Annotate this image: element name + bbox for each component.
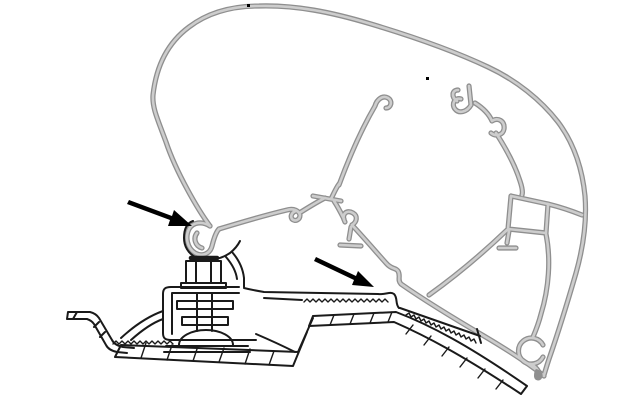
bracket-right-arm [244,288,399,308]
bolt-and-washer-stack [177,293,233,331]
print-speck-inner [426,77,429,80]
sloped-rail-ladder [309,312,527,394]
profile-inner-web-front [339,97,391,185]
profile-box-shell-connector-core [548,204,582,215]
awning-profile-edge-layer [153,6,586,376]
front-hook-pointer-arrow-icon [127,200,192,226]
diagram-canvas [0,0,640,400]
bracket-left-foot [121,311,163,340]
hex-nut [181,261,226,288]
bracket-foot-serration [113,341,173,344]
profile-inner-web-rear-core [475,103,522,195]
print-speck-top [247,4,250,7]
bracket-right-leg [256,334,295,352]
awning-adapter-cross-section-figure: Technical cross-section line drawing of … [0,0,640,400]
roof-sheet-step [67,312,134,353]
bracket-arm-serration [304,299,388,302]
bracket-line-art-layer [67,221,527,394]
rear-hook-pointer-arrow-icon [314,257,374,287]
bracket-clamp-body [163,287,256,340]
profile-inner-web-rear [475,103,522,195]
